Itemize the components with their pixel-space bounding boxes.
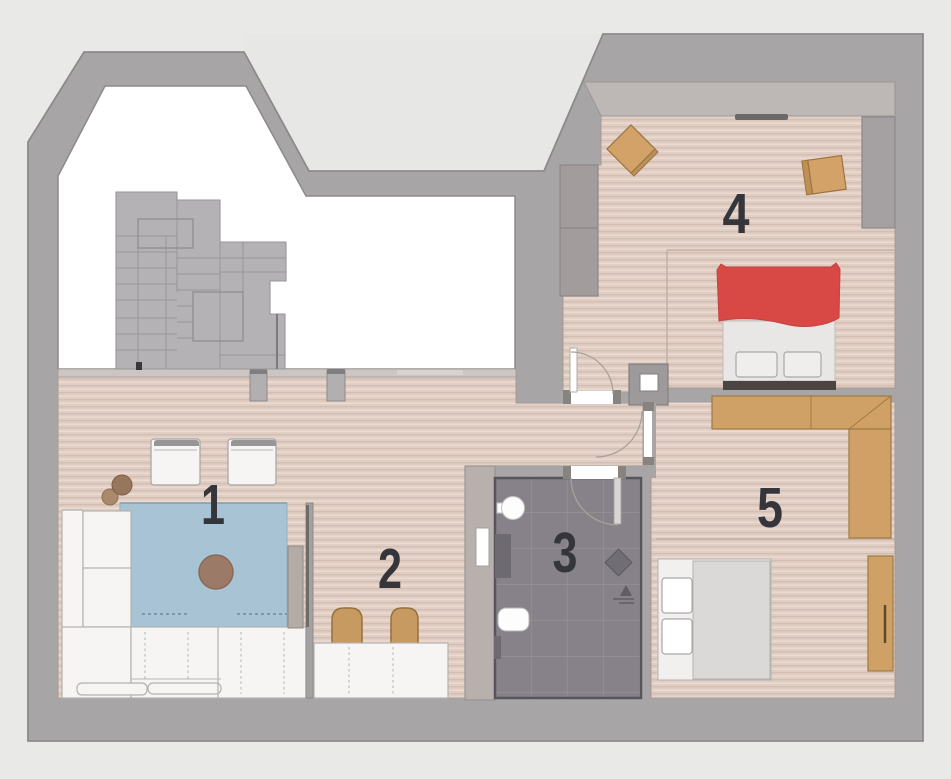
svg-text:3: 3 (553, 521, 578, 585)
svg-text:4: 4 (723, 182, 750, 246)
svg-text:1: 1 (201, 473, 225, 537)
svg-text:5: 5 (757, 476, 783, 540)
svg-text:2: 2 (378, 537, 402, 601)
